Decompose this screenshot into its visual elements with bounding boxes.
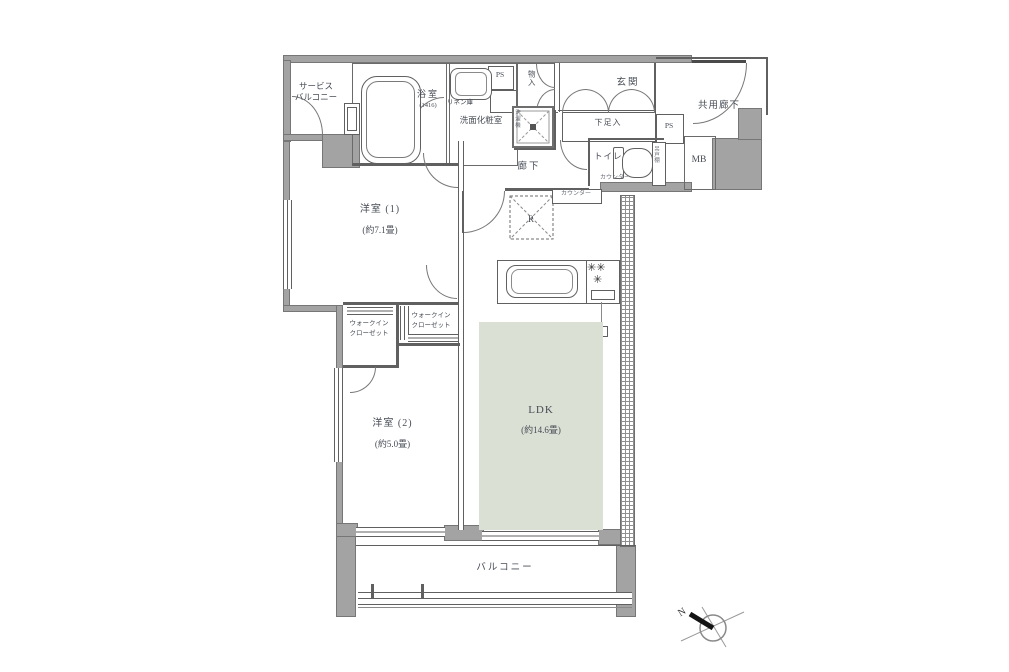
- wic-left-label-1: ウォークイン: [342, 320, 396, 327]
- balcony-railing-line: [358, 607, 632, 608]
- ps-right-label: PS: [656, 122, 682, 130]
- vanity-bowl: [455, 72, 487, 96]
- railing-post: [371, 584, 374, 598]
- window-bedroom2-balcony: [356, 527, 445, 537]
- wall-pier-1: [336, 523, 358, 537]
- entrance-label: 玄関: [604, 78, 652, 88]
- wic-right-label-1: ウォークイン: [404, 312, 458, 319]
- fridge-space: R: [509, 195, 554, 240]
- wall-mb-right: [712, 138, 762, 190]
- stove-grill: [591, 290, 615, 300]
- linen-label: リネン庫: [447, 99, 473, 106]
- bedroom1-size-label: (約7.1畳): [325, 226, 435, 236]
- shoe-box-label: 下足入: [562, 119, 654, 128]
- toilet-counter-label: カウンター: [600, 175, 630, 182]
- wic-left-hanger: [347, 307, 393, 315]
- compass: N: [668, 598, 754, 660]
- toilet-label: トイレ: [594, 152, 623, 161]
- wall-hatched-east: [620, 195, 635, 547]
- compass-north-label: N: [676, 606, 688, 619]
- common-corridor-label: 共用廊下: [698, 101, 740, 111]
- bedroom2-size-label: (約5.0畳): [345, 440, 440, 450]
- window-bedroom1: [283, 200, 292, 289]
- kitchen-sink-inner: [511, 269, 573, 294]
- shoe-door-arc-1: [562, 89, 586, 113]
- fridge-label: R: [528, 214, 534, 224]
- wall-top: [283, 55, 692, 63]
- floor-plan: R ✳✳ ✳ N サービス バルコニー 浴室 (1416) リネン庫 洗面化粧室…: [0, 0, 1009, 672]
- door-toilet: [560, 140, 587, 170]
- ldk-label: LDK: [485, 404, 597, 416]
- wall-balcony-left: [336, 525, 356, 617]
- balcony-label: バルコニー: [450, 563, 560, 573]
- corridor-outer-right: [766, 57, 768, 115]
- wall-step: [283, 305, 341, 312]
- door-corridor-ldk-leaf: [462, 191, 464, 233]
- wall-left-upper: [283, 141, 290, 201]
- railing-post: [421, 584, 424, 598]
- bath-size-label: (1416): [406, 102, 450, 109]
- wall-mb-notch: [738, 108, 762, 140]
- stove-burner-icon: ✳✳: [587, 262, 605, 274]
- window-bedroom2: [334, 368, 343, 462]
- toilet-bowl: [622, 148, 653, 178]
- corridor-label: 廊下: [506, 162, 552, 172]
- door-corridor-ldk: [463, 191, 505, 233]
- door-wic-right: [426, 265, 457, 299]
- wall-washer-bottom: [514, 148, 556, 150]
- meter-box-label: MB: [684, 155, 714, 165]
- bedroom1-label: 洋室 (1): [325, 204, 435, 215]
- door-bedroom1: [423, 153, 458, 188]
- powder-room-label: 洗面化粧室: [445, 116, 517, 125]
- wall-hall-step: [554, 112, 556, 150]
- wall-wic-right-bottom: [398, 343, 460, 346]
- wall-wic-divider: [396, 303, 399, 367]
- ps-top-label: PS: [488, 71, 512, 79]
- service-balcony-label-1: サービス: [287, 82, 345, 91]
- wall-toilet-south: [600, 182, 692, 192]
- wic-left-label-2: クローゼット: [342, 330, 396, 337]
- wall-b1-bottom: [343, 302, 459, 305]
- wall-entrance-right: [654, 63, 656, 113]
- wic-right-label-2: クローゼット: [404, 322, 458, 329]
- corridor-outer-top: [656, 57, 768, 59]
- wall-left-b2-upper: [336, 305, 343, 370]
- door-wic-left: [350, 367, 376, 393]
- window-ldk-balcony: [482, 531, 599, 541]
- service-balcony-label-2: バルコニー: [287, 93, 345, 102]
- shoe-door-arc-2: [585, 89, 609, 113]
- toilet-shelf-label: 吊戸棚: [653, 146, 659, 163]
- shoe-door-arc-3: [608, 89, 632, 113]
- toilet-top: [588, 138, 664, 140]
- washer-label: 洗濯機: [514, 109, 520, 129]
- window-sb-bath-inner: [347, 107, 357, 131]
- shoe-door-arc-4: [631, 89, 655, 113]
- balcony-top-line: [356, 545, 636, 546]
- wall-pier-2: [444, 525, 484, 541]
- bath-label: 浴室: [406, 90, 450, 100]
- ldk-size-label: (約14.6畳): [485, 426, 597, 436]
- stove-burner-icon: ✳: [593, 274, 602, 286]
- kitchen-counter-label: カウンター: [552, 191, 600, 198]
- toilet-left: [588, 138, 590, 186]
- bedroom2-label: 洋室 (2): [345, 418, 440, 429]
- storage-label: 物入: [527, 70, 535, 87]
- wic-right-hanger: [408, 334, 458, 342]
- wall-left-b2-lower: [336, 461, 343, 531]
- balcony-railing: [358, 592, 632, 605]
